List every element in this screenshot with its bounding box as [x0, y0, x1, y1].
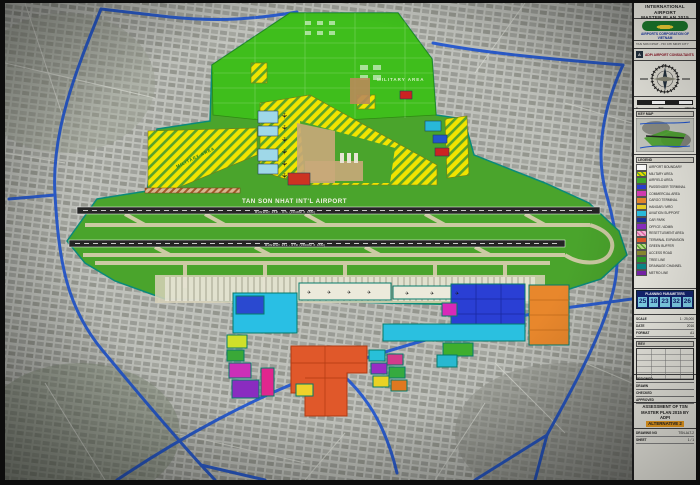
bottom-row: DRAWING NO TSN-ALT-2 [636, 430, 694, 437]
map-board: ✈ ✈ ✈ ✈ ✈ ✈ RU [5, 3, 696, 480]
legend-label: RESETTLEMENT AREA [649, 231, 684, 235]
keymap-title: KEY MAP [636, 111, 694, 117]
bottom-rows: DRAWING NO TSN-ALT-2 SHEET 1 / 1 [636, 430, 694, 444]
legend-swatch [636, 164, 647, 171]
legend-swatch [636, 204, 647, 211]
signature-row: DESIGNED [636, 376, 694, 383]
info-value: A1 [690, 330, 694, 336]
legend-swatch [636, 243, 647, 250]
revision-title: REV [636, 341, 694, 347]
legend-swatch [636, 263, 647, 270]
legend-label: GREEN BUFFER [649, 244, 674, 248]
compass-north-label: N [663, 63, 666, 68]
consultant-block: A ADPi AIRPORT CONSULTANTS [634, 49, 696, 61]
assessment-line2: MASTER PLAN 2015 BY ADPI [641, 410, 689, 421]
legend-label: AIRFIELD AREA [649, 178, 673, 182]
compass-block: N [634, 61, 696, 97]
keymap-block: KEY MAP [634, 109, 696, 155]
info-value: 1 : 25,000 [680, 316, 694, 322]
legend-item: ACCESS ROAD [636, 250, 694, 257]
scale-bar [637, 100, 693, 105]
legend-label: DRAINAGE CHANNEL [649, 264, 682, 268]
legend-label: MILITARY AREA [649, 172, 673, 176]
info-row: SCALE 1 : 25,000 [636, 316, 694, 323]
legend-swatch [636, 237, 647, 244]
legend-label: ACCESS ROAD [649, 251, 672, 255]
compass-rose: N [636, 62, 694, 95]
adpi-logo: A [636, 51, 643, 58]
legend-title: LEGEND [636, 157, 694, 163]
legend-label: AIRPORT BOUNDARY [649, 165, 682, 169]
legend-label: AVIATION SUPPORT [649, 211, 680, 215]
legend-label: COMMERCIAL AREA [649, 192, 680, 196]
bottom-key: DRAWING NO [636, 430, 657, 436]
legend-swatch [636, 250, 647, 257]
info-key: FORMAT [636, 330, 649, 336]
planning-table-cell: 32 [671, 296, 682, 308]
planning-table-cell: 18 [648, 296, 659, 308]
acv-logo [642, 21, 688, 31]
authority-subline: TAN SON NHAT - HO CHI MINH CITY [636, 42, 694, 46]
legend-label: TERMINAL EXPANSION [649, 238, 684, 242]
legend-item: TREE LINE [636, 256, 694, 263]
bottom-row: SHEET 1 / 1 [636, 437, 694, 444]
authority-block: AIRPORTS CORPORATION OF VIETNAM [634, 19, 696, 41]
info-row: DATE 2016 [636, 323, 694, 330]
signature-row: CHECKED [636, 390, 694, 397]
info-key: DATE [636, 323, 644, 329]
legend-item: TERMINAL EXPANSION [636, 237, 694, 244]
legend-item: AIRPORT BOUNDARY [636, 164, 694, 171]
planning-table: PLANNING PARAMETERS 25 18 23 32 26 [636, 290, 694, 309]
legend-item: CARGO TERMINAL [636, 197, 694, 204]
assessment-line1: ASSESSMENT OF TSN [642, 404, 687, 409]
legend-label: PASSENGER TERMINAL [649, 185, 686, 189]
legend-swatch [636, 270, 647, 277]
legend-label: HANGAR / MRO [649, 205, 673, 209]
bottom-value: TSN-ALT-2 [678, 430, 694, 436]
legend-label: TREE LINE [649, 258, 665, 262]
legend-item: DRAINAGE CHANNEL [636, 263, 694, 270]
keymap-thumbnail [636, 118, 694, 152]
info-row: FORMAT A1 [636, 330, 694, 337]
data-table-block: PLANNING PARAMETERS 25 18 23 32 26 [634, 289, 696, 315]
legend-label: CARGO TERMINAL [649, 198, 678, 202]
legend-label: METRO LINE [649, 271, 668, 275]
map-svg: ✈ ✈ ✈ ✈ ✈ ✈ RU [5, 3, 632, 480]
legend-swatch [636, 223, 647, 230]
info-value: 2016 [687, 323, 694, 329]
authority-name: AIRPORTS CORPORATION OF VIETNAM [636, 32, 694, 40]
legend-label: OFFICE / ADMIN [649, 225, 673, 229]
legend-swatch [636, 197, 647, 204]
planning-table-row: 25 18 23 32 26 [637, 296, 693, 308]
signature-block: DESIGNED DRAWN CHECKED APPROVED [634, 375, 696, 403]
legend-item: CAR PARK [636, 217, 694, 224]
legend-swatch [636, 256, 647, 263]
scalebar-block: 0 500 1000 M [634, 97, 696, 109]
info-key: SCALE [636, 316, 647, 322]
planning-table-cell: 23 [659, 296, 670, 308]
signature-row: DRAWN [636, 383, 694, 390]
legend-item: MILITARY AREA [636, 171, 694, 178]
legend-item: AIRFIELD AREA [636, 177, 694, 184]
assessment-block: ASSESSMENT OF TSN MASTER PLAN 2015 BY AD… [634, 403, 696, 429]
consultant-name: ADPi AIRPORT CONSULTANTS [645, 53, 694, 57]
legend-item: COMMERCIAL AREA [636, 190, 694, 197]
legend-item: HANGAR / MRO [636, 204, 694, 211]
info-rows-block: SCALE 1 : 25,000 DATE 2016 FORMAT A1 [634, 315, 696, 339]
legend-swatch [636, 230, 647, 237]
map-area: ✈ ✈ ✈ ✈ ✈ ✈ RU [5, 3, 632, 480]
legend-label: CAR PARK [649, 218, 665, 222]
bottom-value: 1 / 1 [688, 437, 694, 443]
legend-block: LEGEND AIRPORT BOUNDARY MILITARY AREA [634, 155, 696, 289]
legend-item: METRO LINE [636, 270, 694, 277]
revision-block: REV [634, 339, 696, 375]
titleblock-panel: INTERNATIONAL AIRPORT MASTER PLAN 2015 A… [632, 3, 696, 480]
legend-swatch [636, 217, 647, 224]
signature-rows: DESIGNED DRAWN CHECKED APPROVED [636, 376, 694, 404]
info-rows: SCALE 1 : 25,000 DATE 2016 FORMAT A1 [636, 316, 694, 337]
photo-vignette [5, 3, 632, 480]
assessment-alternative: ALTERNATIVE 2 [646, 421, 684, 427]
legend-item: PASSENGER TERMINAL [636, 184, 694, 191]
legend-swatch [636, 210, 647, 217]
authority-sub-block: TAN SON NHAT - HO CHI MINH CITY [634, 41, 696, 49]
planning-table-cell: 25 [637, 296, 648, 308]
legend-item: GREEN BUFFER [636, 243, 694, 250]
legend-item: OFFICE / ADMIN [636, 223, 694, 230]
bottom-key: SHEET [636, 437, 647, 443]
legend-swatch [636, 177, 647, 184]
legend-item: RESETTLEMENT AREA [636, 230, 694, 237]
legend-swatch [636, 184, 647, 191]
planning-table-cell: 26 [682, 296, 693, 308]
bottom-rows-block: DRAWING NO TSN-ALT-2 SHEET 1 / 1 [634, 429, 696, 451]
legend-swatch [636, 190, 647, 197]
legend-item: AVIATION SUPPORT [636, 210, 694, 217]
panel-title-line1: INTERNATIONAL AIRPORT [645, 4, 685, 15]
panel-title: INTERNATIONAL AIRPORT MASTER PLAN 2015 [634, 3, 696, 19]
legend-swatch [636, 171, 647, 178]
legend-list: AIRPORT BOUNDARY MILITARY AREA AIRFIELD … [636, 164, 694, 276]
